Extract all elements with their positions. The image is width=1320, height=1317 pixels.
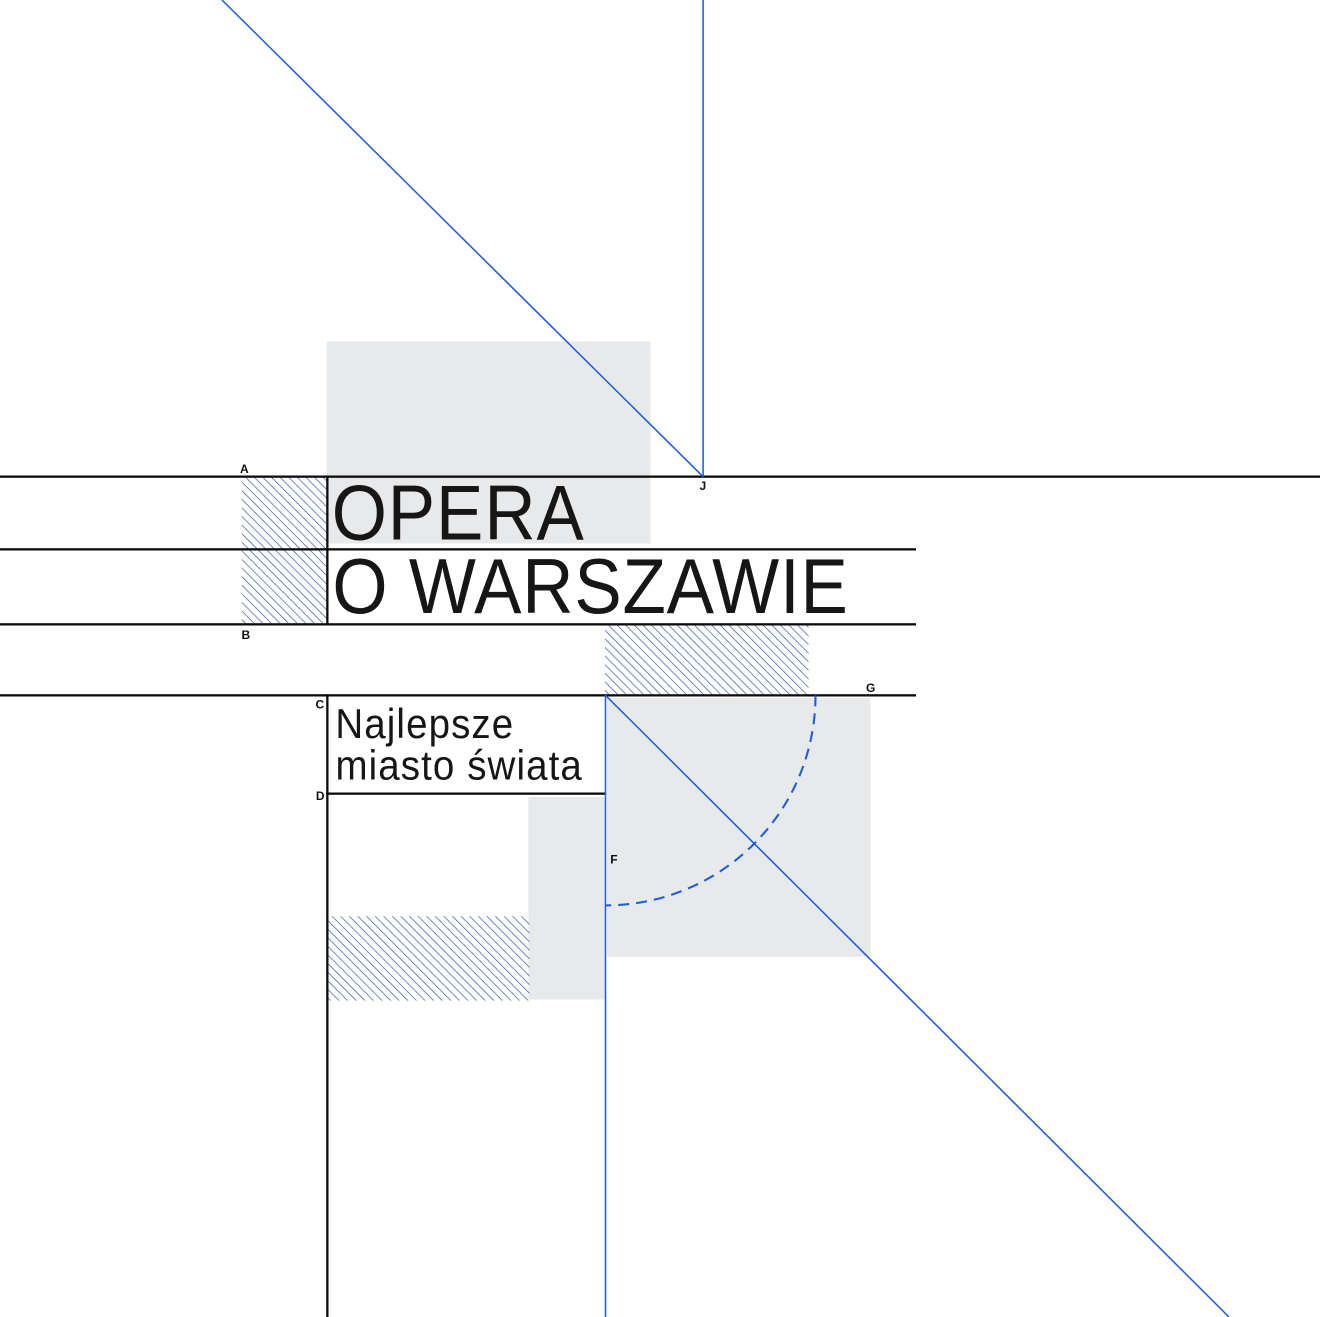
svg-text:D: D: [316, 789, 325, 803]
svg-text:O WARSZAWIE: O WARSZAWIE: [332, 542, 848, 630]
svg-text:miasto świata: miasto świata: [335, 743, 582, 789]
svg-text:C: C: [316, 698, 325, 712]
svg-text:F: F: [610, 853, 617, 867]
svg-text:Najlepsze: Najlepsze: [335, 702, 514, 748]
svg-text:A: A: [240, 462, 249, 476]
svg-text:J: J: [700, 479, 707, 493]
svg-text:G: G: [866, 681, 875, 695]
svg-text:B: B: [242, 628, 251, 642]
